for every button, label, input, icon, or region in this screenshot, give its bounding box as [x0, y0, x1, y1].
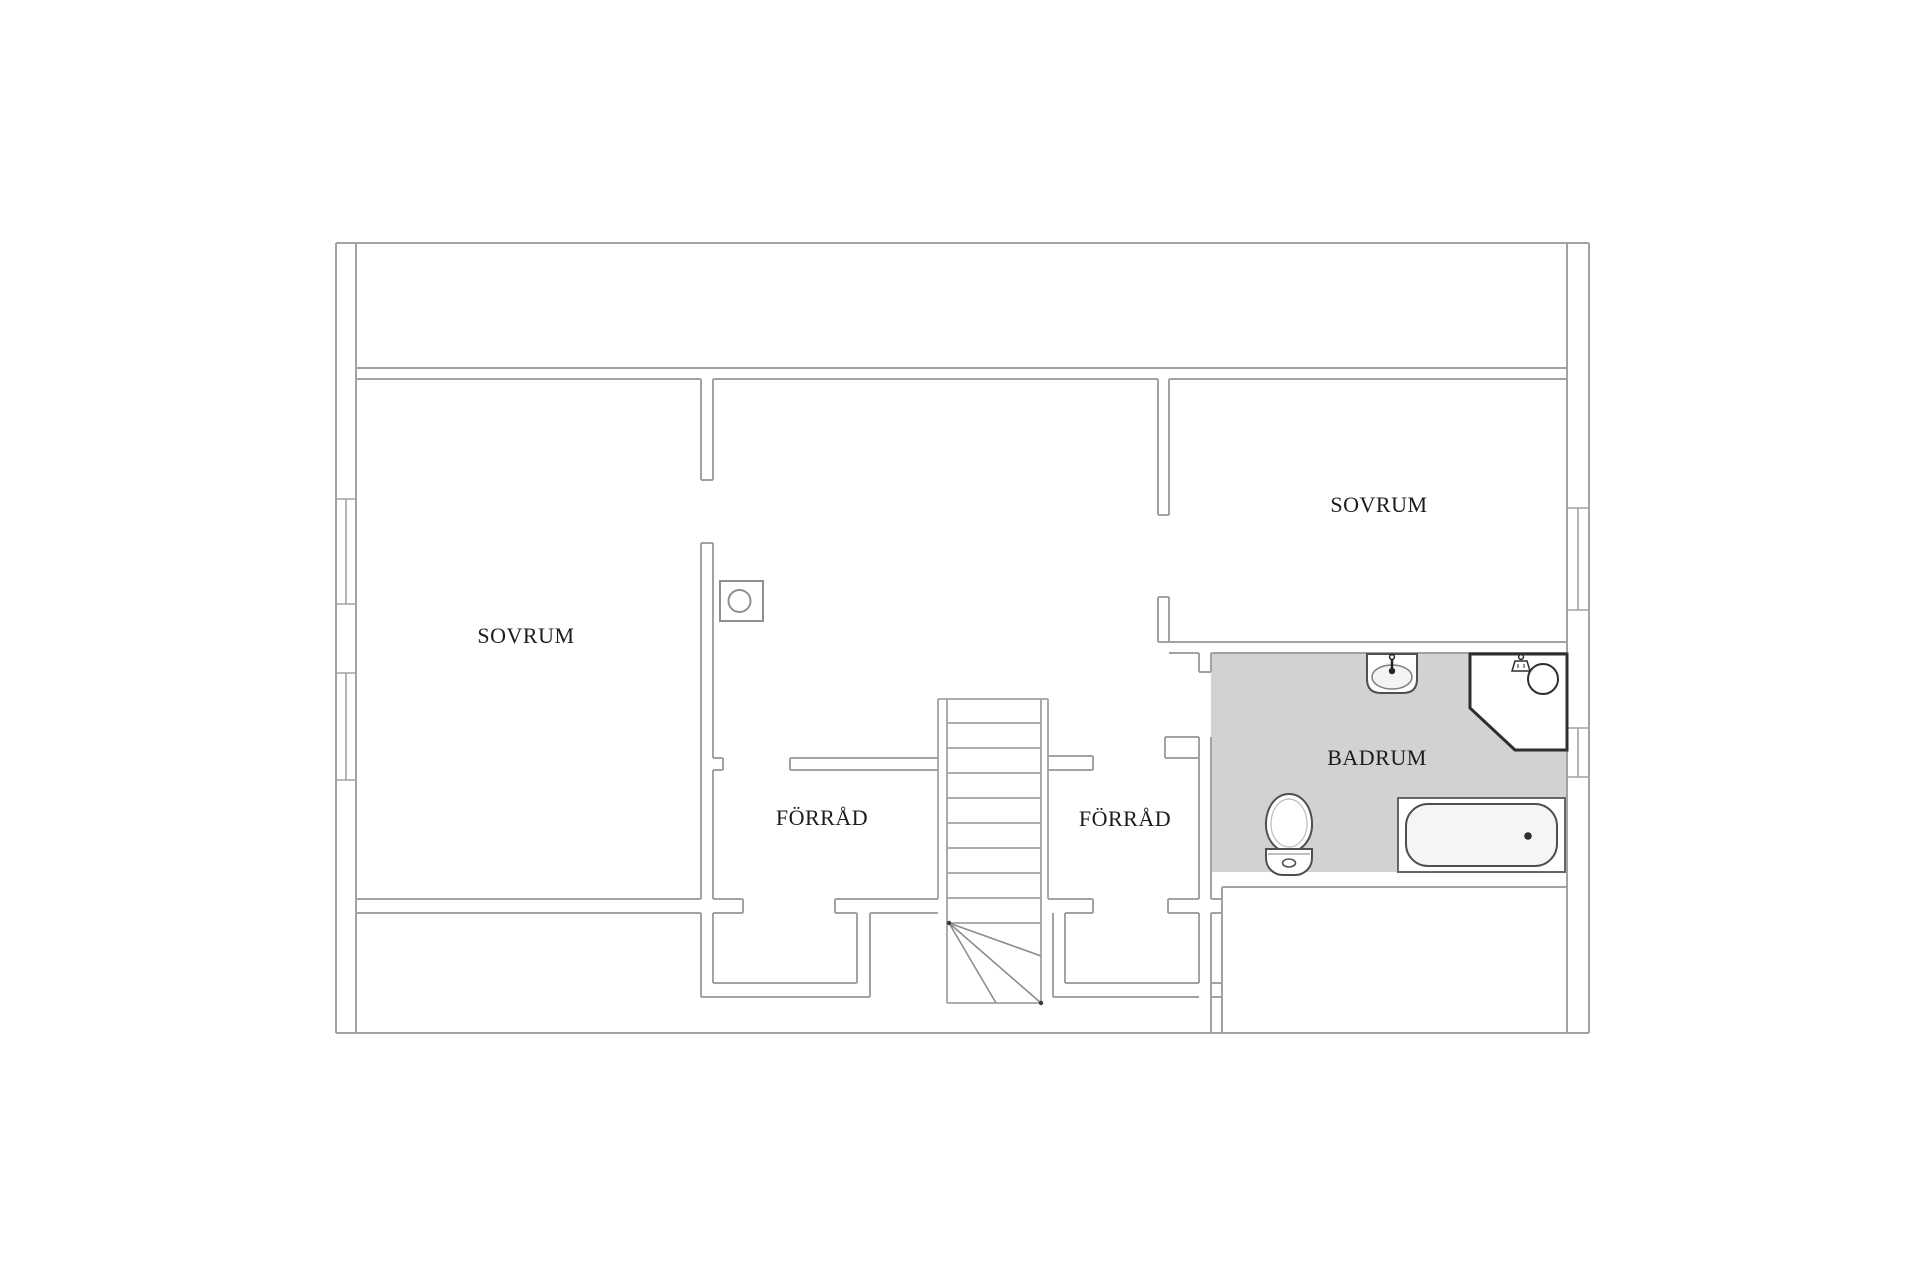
toilet-symbol — [1266, 794, 1312, 875]
chimney-symbol — [720, 581, 763, 621]
sink-symbol — [1367, 654, 1417, 693]
room-label-forrad-left: FÖRRÅD — [776, 805, 868, 830]
shower-head-knob — [1519, 655, 1524, 660]
chimney-flue-circle — [729, 590, 751, 612]
staircase — [938, 699, 1048, 1005]
stair-shaft-and-treads — [938, 699, 1048, 1003]
toilet-tank — [1266, 794, 1312, 852]
room-label-sovrum-right: SOVRUM — [1330, 492, 1427, 517]
floor-plan-page: SOVRUM SOVRUM FÖRRÅD FÖRRÅD BADRUM — [0, 0, 1920, 1280]
toilet-flush-button — [1283, 859, 1296, 867]
shower-seat-circle — [1528, 664, 1558, 694]
bathtub-inner — [1406, 804, 1557, 866]
stair-winder-lines — [949, 923, 1041, 1003]
stair-pivot-dot — [947, 921, 951, 925]
stair-corner-dot — [1039, 1001, 1043, 1005]
bathtub-drain — [1524, 832, 1532, 840]
sink-faucet-knob — [1390, 655, 1395, 660]
bathtub-symbol — [1398, 798, 1565, 872]
room-label-badrum: BADRUM — [1327, 745, 1427, 770]
room-label-forrad-right: FÖRRÅD — [1079, 806, 1171, 831]
sink-faucet-spout — [1389, 668, 1395, 674]
shower-head — [1512, 661, 1530, 671]
floor-plan-svg: SOVRUM SOVRUM FÖRRÅD FÖRRÅD BADRUM — [0, 0, 1920, 1280]
room-label-sovrum-left: SOVRUM — [477, 623, 574, 648]
